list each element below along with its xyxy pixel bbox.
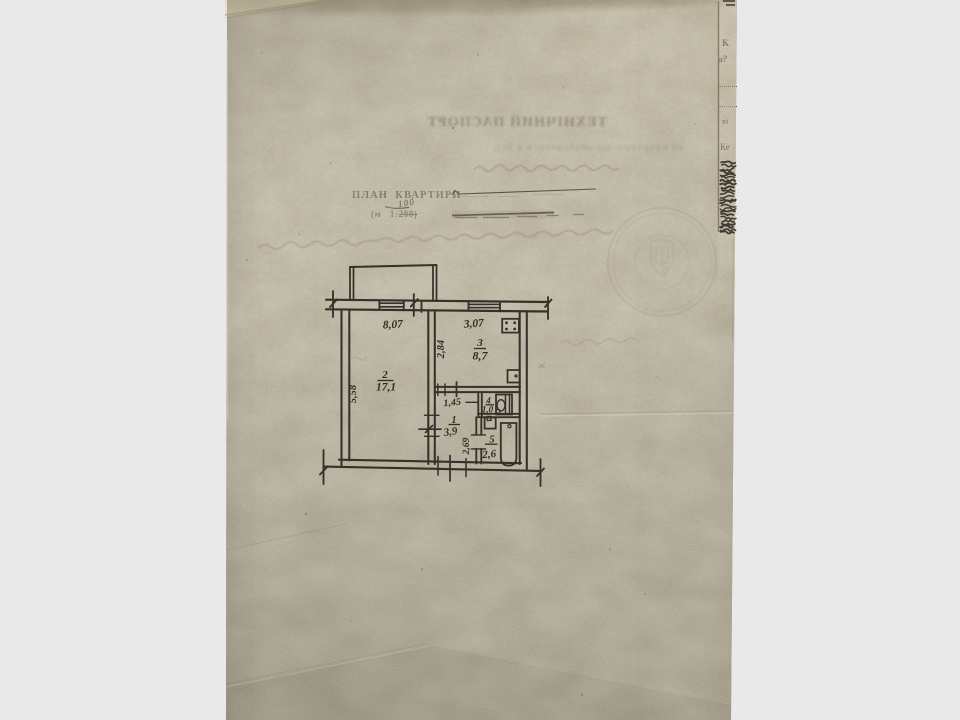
svg-text:2,6: 2,6: [481, 448, 497, 461]
svg-text:1,45: 1,45: [443, 397, 462, 410]
svg-text:3,07: 3,07: [462, 317, 485, 331]
svg-text:3,9: 3,9: [442, 425, 459, 439]
svg-text:8,07: 8,07: [382, 318, 404, 331]
svg-text:3: 3: [476, 337, 483, 349]
svg-text:17,1: 17,1: [376, 382, 396, 394]
svg-text:8,7: 8,7: [473, 349, 489, 363]
svg-text:1,0: 1,0: [482, 405, 494, 415]
svg-text:2,69: 2,69: [462, 437, 472, 455]
svg-text:2: 2: [381, 369, 388, 381]
svg-text:5,58: 5,58: [348, 384, 359, 403]
svg-text:2,84: 2,84: [436, 340, 447, 359]
